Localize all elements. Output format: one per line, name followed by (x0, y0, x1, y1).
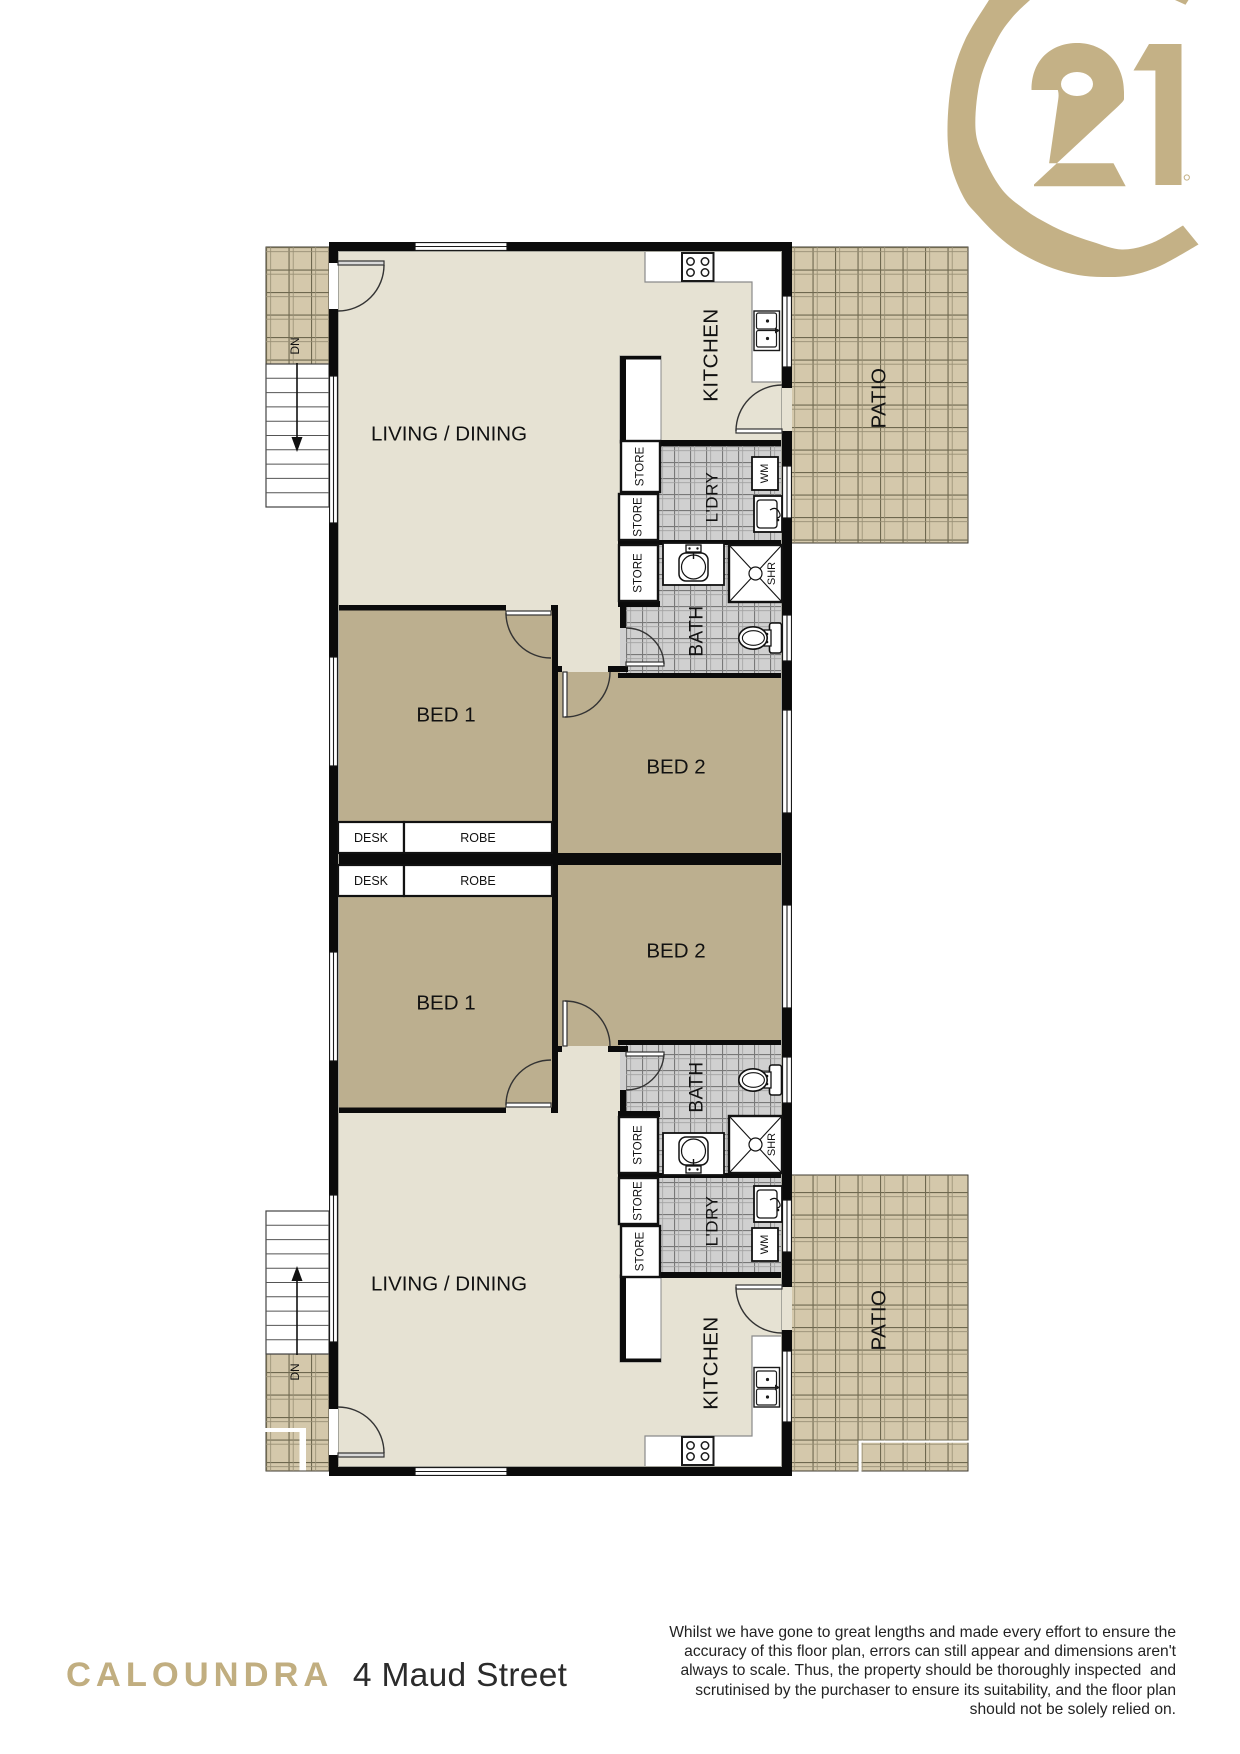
svg-text:DN: DN (288, 1363, 302, 1380)
svg-text:STORE: STORE (635, 1231, 647, 1271)
svg-text:BED 2: BED 2 (646, 940, 705, 963)
svg-text:KITCHEN: KITCHEN (700, 308, 723, 401)
svg-text:SHR: SHR (766, 1133, 778, 1156)
svg-text:STORE: STORE (633, 553, 645, 593)
svg-text:WM: WM (759, 464, 771, 484)
svg-text:BED 1: BED 1 (416, 992, 475, 1015)
svg-text:PATIO: PATIO (868, 1290, 891, 1351)
svg-text:ROBE: ROBE (460, 831, 495, 845)
svg-text:WM: WM (759, 1235, 771, 1255)
svg-text:DN: DN (288, 337, 302, 354)
svg-text:STORE: STORE (633, 497, 645, 537)
svg-text:STORE: STORE (633, 1181, 645, 1221)
svg-text:STORE: STORE (635, 446, 647, 486)
svg-text:BATH: BATH (687, 1061, 708, 1112)
svg-text:KITCHEN: KITCHEN (700, 1316, 723, 1409)
svg-text:DESK: DESK (354, 831, 389, 845)
svg-text:DESK: DESK (354, 874, 389, 888)
svg-text:STORE: STORE (633, 1125, 645, 1165)
svg-text:L'DRY: L'DRY (703, 1196, 722, 1247)
svg-text:LIVING / DINING: LIVING / DINING (371, 1273, 527, 1296)
svg-text:ROBE: ROBE (460, 874, 495, 888)
svg-text:L'DRY: L'DRY (703, 472, 722, 523)
svg-text:BATH: BATH (687, 605, 708, 656)
svg-text:BED 1: BED 1 (416, 704, 475, 727)
svg-text:SHR: SHR (766, 562, 778, 585)
svg-text:LIVING / DINING: LIVING / DINING (371, 423, 527, 446)
svg-text:BED 2: BED 2 (646, 756, 705, 779)
svg-text:PATIO: PATIO (868, 368, 891, 429)
